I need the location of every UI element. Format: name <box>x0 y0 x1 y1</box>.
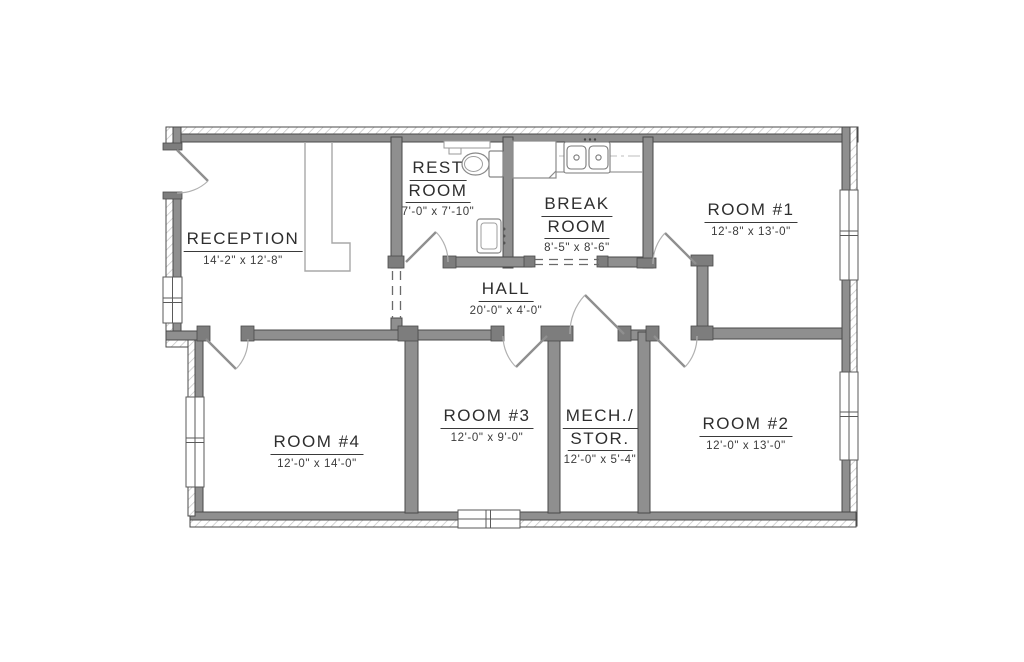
shelf-icon <box>444 141 490 154</box>
room-dimensions: 12'-0" x 13'-0" <box>706 440 786 452</box>
room-name: STOR. <box>567 429 632 452</box>
room-name: ROOM <box>545 217 610 240</box>
room-label-room3: ROOM #3 12'-0" x 9'-0" <box>440 406 533 444</box>
room4-door <box>206 339 248 369</box>
room-label-restroom: REST ROOM 7'-0" x 7'-10" <box>402 158 475 218</box>
room-name: REST <box>409 158 466 181</box>
room-dimensions: 12'-0" x 14'-0" <box>277 458 357 470</box>
room-label-room1: ROOM #1 12'-8" x 13'-0" <box>704 200 797 238</box>
room-dimensions: 14'-2" x 12'-8" <box>203 255 283 267</box>
room-name: ROOM #4 <box>270 432 363 455</box>
floor-plan-page: RECEPTION 14'-2" x 12'-8" REST ROOM 7'-0… <box>0 0 1024 662</box>
kitchen-double-sink-icon <box>564 138 610 173</box>
room-name: MECH./ <box>563 406 638 429</box>
floor-plan-drawing <box>0 0 1024 662</box>
room-label-mech-stor: MECH./ STOR. 12'-0" x 5'-4" <box>563 406 638 466</box>
room-label-room4: ROOM #4 12'-0" x 14'-0" <box>270 432 363 470</box>
room-label-hall: HALL 20'-0" x 4'-0" <box>470 279 543 317</box>
mech-door <box>570 295 624 334</box>
room-dimensions: 7'-0" x 7'-10" <box>402 206 475 218</box>
room-dimensions: 12'-0" x 9'-0" <box>451 432 524 444</box>
room-name: BREAK <box>541 194 612 217</box>
room-name: ROOM #2 <box>699 414 792 437</box>
room-label-room2: ROOM #2 12'-0" x 13'-0" <box>699 414 792 452</box>
room-dimensions: 12'-8" x 13'-0" <box>711 226 791 238</box>
room2-door <box>654 336 697 367</box>
room-label-reception: RECEPTION 14'-2" x 12'-8" <box>184 229 303 267</box>
window-room1-right <box>840 190 858 280</box>
window-room3-bottom <box>458 510 520 528</box>
window-room4-left <box>186 397 204 487</box>
entry-door-opening <box>163 150 182 192</box>
room-name: ROOM #1 <box>704 200 797 223</box>
room-label-breakroom: BREAK ROOM 8'-5" x 8'-6" <box>541 194 612 254</box>
window-room2-right <box>840 372 858 460</box>
window-reception-left <box>163 277 182 323</box>
bathroom-sink-icon <box>477 219 506 253</box>
room-name: RECEPTION <box>184 229 303 252</box>
room-name: HALL <box>479 279 534 302</box>
room3-door <box>503 336 547 367</box>
room-dimensions: 8'-5" x 8'-6" <box>544 242 610 254</box>
room-name: ROOM <box>406 181 471 204</box>
reception-desk <box>305 142 350 271</box>
room1-door <box>653 233 696 264</box>
restroom-door <box>406 232 448 262</box>
refrigerator-icon <box>513 141 556 178</box>
room-name: ROOM #3 <box>440 406 533 429</box>
room-dimensions: 12'-0" x 5'-4" <box>564 454 637 466</box>
room-dimensions: 20'-0" x 4'-0" <box>470 305 543 317</box>
